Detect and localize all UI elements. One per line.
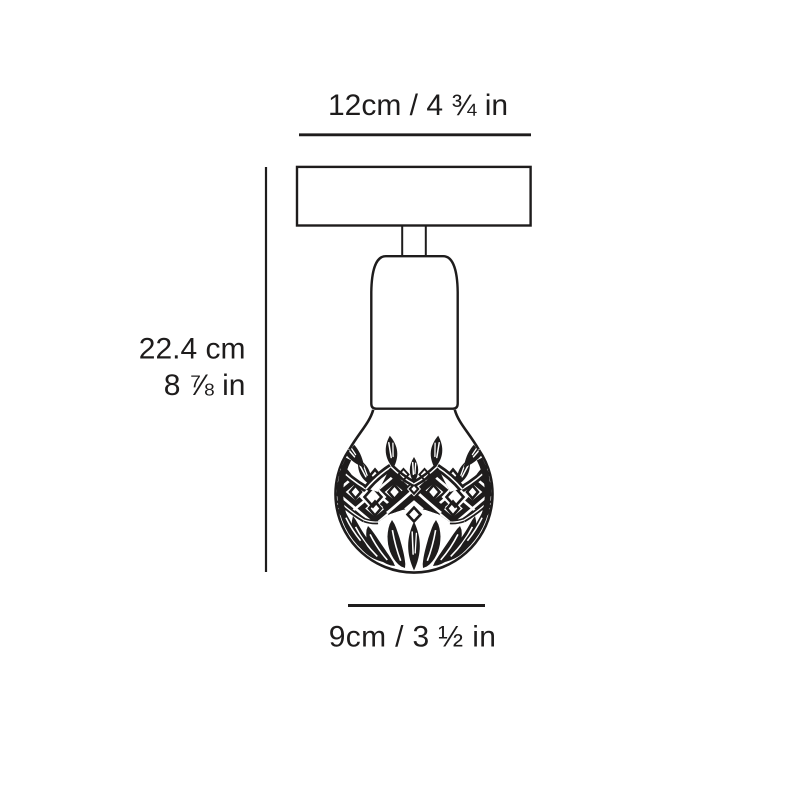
- svg-text:8 ⅞ in: 8 ⅞ in: [164, 369, 246, 402]
- svg-text:22.4 cm: 22.4 cm: [139, 333, 246, 366]
- svg-text:9cm / 3 ½ in: 9cm / 3 ½ in: [329, 621, 497, 654]
- svg-text:12cm / 4 ¾ in: 12cm / 4 ¾ in: [328, 89, 508, 122]
